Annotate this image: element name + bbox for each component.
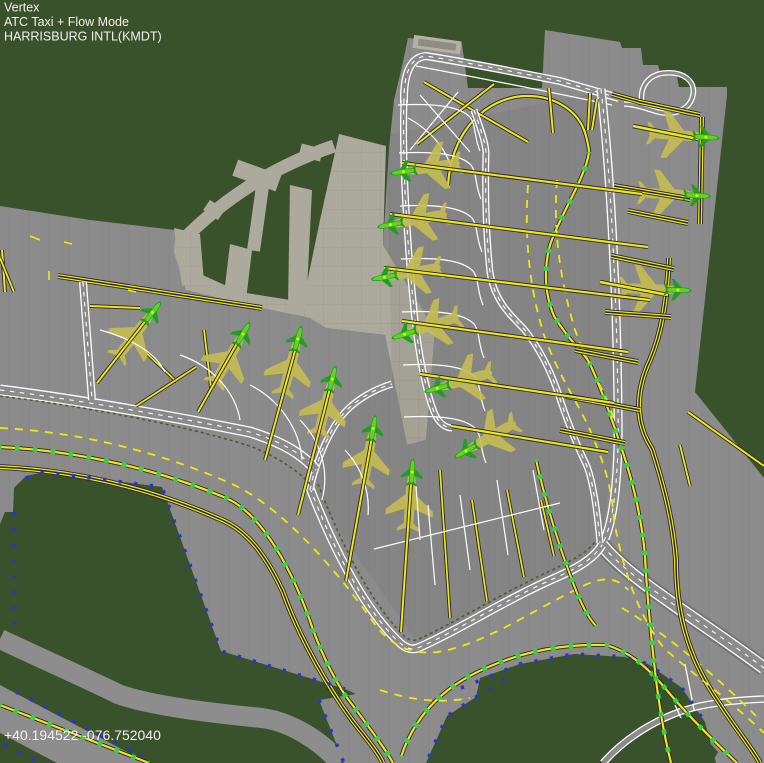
svg-text:Vertex: Vertex <box>4 1 40 15</box>
svg-text:ATC Taxi + Flow Mode: ATC Taxi + Flow Mode <box>4 15 129 29</box>
svg-text:HARRISBURG INTL(KMDT): HARRISBURG INTL(KMDT) <box>4 30 162 44</box>
svg-text:+40.194522 -076.752040: +40.194522 -076.752040 <box>4 727 161 743</box>
